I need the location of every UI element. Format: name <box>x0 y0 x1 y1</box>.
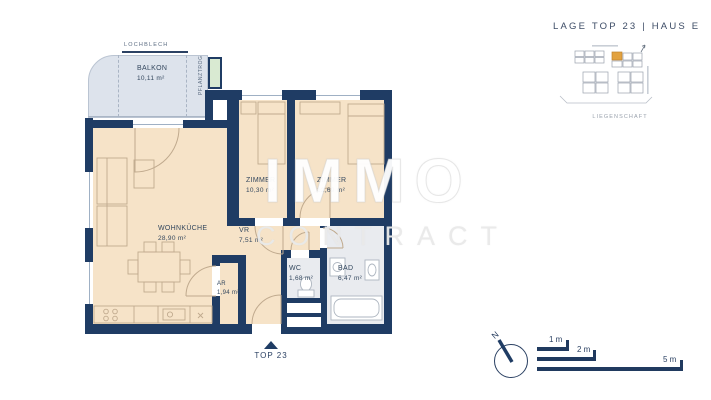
balcony-door-opening <box>133 120 183 128</box>
shaft-slot-1 <box>287 303 321 313</box>
watermark-contract: CONTRACT <box>256 221 510 252</box>
room-name: WOHNKÜCHE <box>158 224 207 234</box>
balcony-area-value: 10,11 m² <box>137 74 167 83</box>
window-top-2 <box>316 90 360 100</box>
room-name: AR <box>217 280 239 289</box>
room-name: BAD <box>338 264 362 274</box>
room-label-ar: AR 1,94 m² <box>217 280 239 297</box>
room-label-wc: WC 1,68 m² <box>289 264 313 284</box>
room-name: WC <box>289 264 313 274</box>
room-label-wohnkueche: WOHNKÜCHE 28,90 m² <box>158 224 207 244</box>
room-area: 6,47 m² <box>338 274 362 283</box>
floor-plan-page: BALKON 10,11 m² LOCHBLECH PFLANZTROG WOH… <box>0 0 711 400</box>
shaft-slot-2 <box>287 317 321 327</box>
room-area: 1,94 m² <box>217 289 239 298</box>
window-left-1 <box>85 172 93 228</box>
window-top-1 <box>242 90 282 100</box>
entrance-door-opening <box>252 324 281 334</box>
balcony-label: BALKON 10,11 m² <box>137 64 167 84</box>
room-area: 1,68 m² <box>289 274 313 283</box>
watermark-immo: IMMO <box>264 146 473 217</box>
room-area: 28,90 m² <box>158 234 207 243</box>
window-left-2 <box>85 262 93 304</box>
room-label-bad: BAD 6,47 m² <box>338 264 362 284</box>
balcony-name: BALKON <box>137 64 167 74</box>
